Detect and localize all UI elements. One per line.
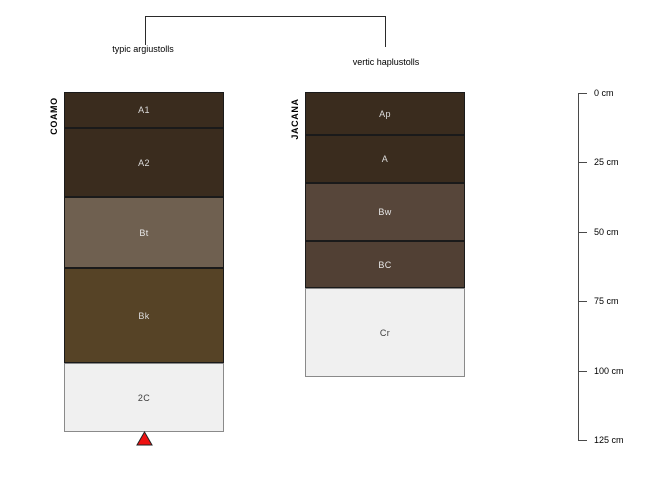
depth-scale-axis <box>578 93 579 440</box>
soil-layer-jacana-cr: Cr <box>305 288 465 377</box>
depth-tick-label: 125 cm <box>594 434 624 446</box>
profile-name-coamo: COAMO <box>47 86 61 146</box>
soil-horizon-label: BC <box>378 260 391 270</box>
soil-horizon-label: A <box>382 154 388 164</box>
depth-tick-125 <box>578 440 587 441</box>
profile-name-jacana: JACANA <box>288 89 302 149</box>
depth-tick-0 <box>578 93 587 94</box>
soil-horizon-label: Bk <box>138 311 149 321</box>
soil-layer-coamo-a1: A1 <box>64 92 224 128</box>
soil-layer-jacana-bw: Bw <box>305 183 465 241</box>
soil-layer-jacana-ap: Ap <box>305 92 465 135</box>
soil-horizon-label: 2C <box>138 393 150 403</box>
classification-label-right: vertic haplustolls <box>331 57 441 67</box>
bracket-right-arm <box>385 16 386 47</box>
soil-layer-coamo-bk: Bk <box>64 268 224 363</box>
soil-layer-coamo-bt: Bt <box>64 197 224 268</box>
depth-tick-100 <box>578 371 587 372</box>
depth-tick-label: 25 cm <box>594 156 619 168</box>
depth-tick-label: 75 cm <box>594 295 619 307</box>
depth-tick-label: 50 cm <box>594 226 619 238</box>
depth-tick-label: 0 cm <box>594 87 614 99</box>
soil-horizon-label: Ap <box>379 109 391 119</box>
soil-layer-coamo-a2: A2 <box>64 128 224 197</box>
depth-tick-50 <box>578 232 587 233</box>
triangle-up-marker-icon <box>136 431 153 446</box>
soil-horizon-label: A2 <box>138 158 150 168</box>
bracket-left-arm <box>145 16 146 45</box>
bracket-horizontal-line <box>145 16 386 17</box>
soil-horizon-label: Cr <box>380 328 390 338</box>
soil-layer-jacana-a: A <box>305 135 465 183</box>
soil-horizon-label: Bt <box>139 228 148 238</box>
soil-layer-coamo-2c: 2C <box>64 363 224 432</box>
soil-horizon-label: Bw <box>378 207 391 217</box>
depth-tick-25 <box>578 162 587 163</box>
soil-profile-figure: typic argiustolls vertic haplustolls COA… <box>0 0 650 500</box>
classification-label-left: typic argiustolls <box>88 44 198 54</box>
depth-tick-label: 100 cm <box>594 365 624 377</box>
soil-layer-jacana-bc: BC <box>305 241 465 288</box>
depth-tick-75 <box>578 301 587 302</box>
soil-horizon-label: A1 <box>138 105 150 115</box>
